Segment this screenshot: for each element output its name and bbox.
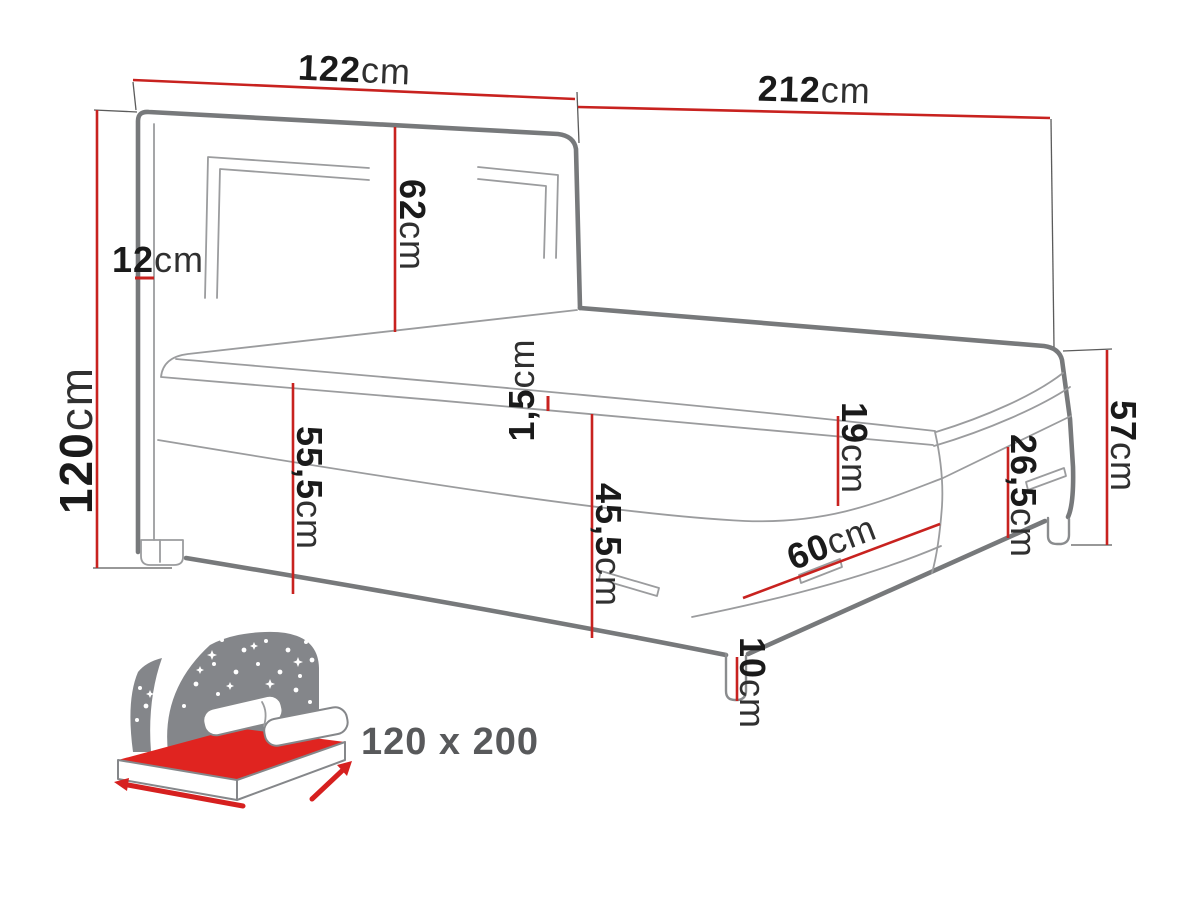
label-side-height-rear-unit: cm <box>1103 442 1144 492</box>
label-footboard-panel: 26,5cm <box>1003 434 1044 558</box>
label-leg-unit: cm <box>732 679 773 729</box>
mattress-front-edge <box>176 359 935 431</box>
mattress-foot-piping <box>934 387 1070 446</box>
dimension-lines <box>97 80 1107 701</box>
label-leg-value: 10 <box>732 637 773 679</box>
diagram-page: 122cm 212cm 62cm 12cm 120cm 1,5cm 55,5cm… <box>0 0 1198 899</box>
label-topper-unit: cm <box>501 338 542 388</box>
label-headboard-panel: 62cm <box>392 179 433 271</box>
label-headboard-panel-value: 62 <box>392 179 433 221</box>
label-bed-length: 212cm <box>757 68 871 112</box>
label-topper-value: 1,5 <box>501 388 542 441</box>
label-headboard-width: 122cm <box>297 47 412 93</box>
right-leg <box>1048 518 1069 544</box>
label-side-height-front: 55,5cm <box>289 426 330 550</box>
label-bed-length-unit: cm <box>820 69 871 111</box>
label-mattress-value: 19 <box>834 402 875 444</box>
bed-dimension-diagram: 122cm 212cm 62cm 12cm 120cm 1,5cm 55,5cm… <box>0 0 1198 899</box>
bed-size-label: 120 x 200 <box>361 721 539 763</box>
mattress-rear-edge <box>161 310 933 445</box>
label-base-height: 45,5cm <box>588 483 629 607</box>
headboard-foot <box>141 540 183 565</box>
label-headboard-height-unit: cm <box>50 366 102 431</box>
icon-length-arrow <box>312 768 345 799</box>
label-headboard-height-value: 120 <box>50 431 102 514</box>
label-headboard-width-value: 122 <box>297 47 362 91</box>
label-topper: 1,5cm <box>501 338 542 441</box>
bed-size-icon <box>114 632 352 806</box>
label-drawer-width: 60cm <box>781 507 882 578</box>
label-side-height-rear: 57cm <box>1103 400 1144 492</box>
label-base-height-unit: cm <box>588 557 629 607</box>
label-side-height-front-value: 55,5 <box>289 426 330 500</box>
ext-57-top <box>1063 349 1112 351</box>
label-side-height-front-unit: cm <box>289 500 330 550</box>
label-headboard-depth-unit: cm <box>154 239 204 280</box>
label-footboard-panel-value: 26,5 <box>1003 434 1044 508</box>
ext-122-left <box>133 82 136 110</box>
led-bracket-left-inner <box>217 169 369 298</box>
ext-122-212 <box>577 92 579 143</box>
label-headboard-height: 120cm <box>50 366 102 514</box>
ext-212-right <box>1051 119 1054 347</box>
headboard-outline <box>138 112 580 552</box>
label-leg: 10cm <box>732 637 773 729</box>
label-mattress: 19cm <box>834 402 875 494</box>
label-bed-length-value: 212 <box>757 68 821 111</box>
led-bracket-right-inner <box>478 179 546 258</box>
label-headboard-width-unit: cm <box>360 49 412 92</box>
dimension-labels: 122cm 212cm 62cm 12cm 120cm 1,5cm 55,5cm… <box>50 47 1144 729</box>
label-footboard-panel-unit: cm <box>1003 508 1044 558</box>
label-headboard-panel-unit: cm <box>392 221 433 271</box>
ext-120-top <box>94 110 137 112</box>
label-headboard-depth: 12cm <box>112 239 204 280</box>
label-headboard-depth-value: 12 <box>112 239 154 280</box>
label-base-height-value: 45,5 <box>588 483 629 557</box>
back-rail-outline <box>580 308 1073 517</box>
label-mattress-unit: cm <box>834 444 875 494</box>
corner-edge <box>932 432 942 573</box>
label-side-height-rear-value: 57 <box>1103 400 1144 442</box>
